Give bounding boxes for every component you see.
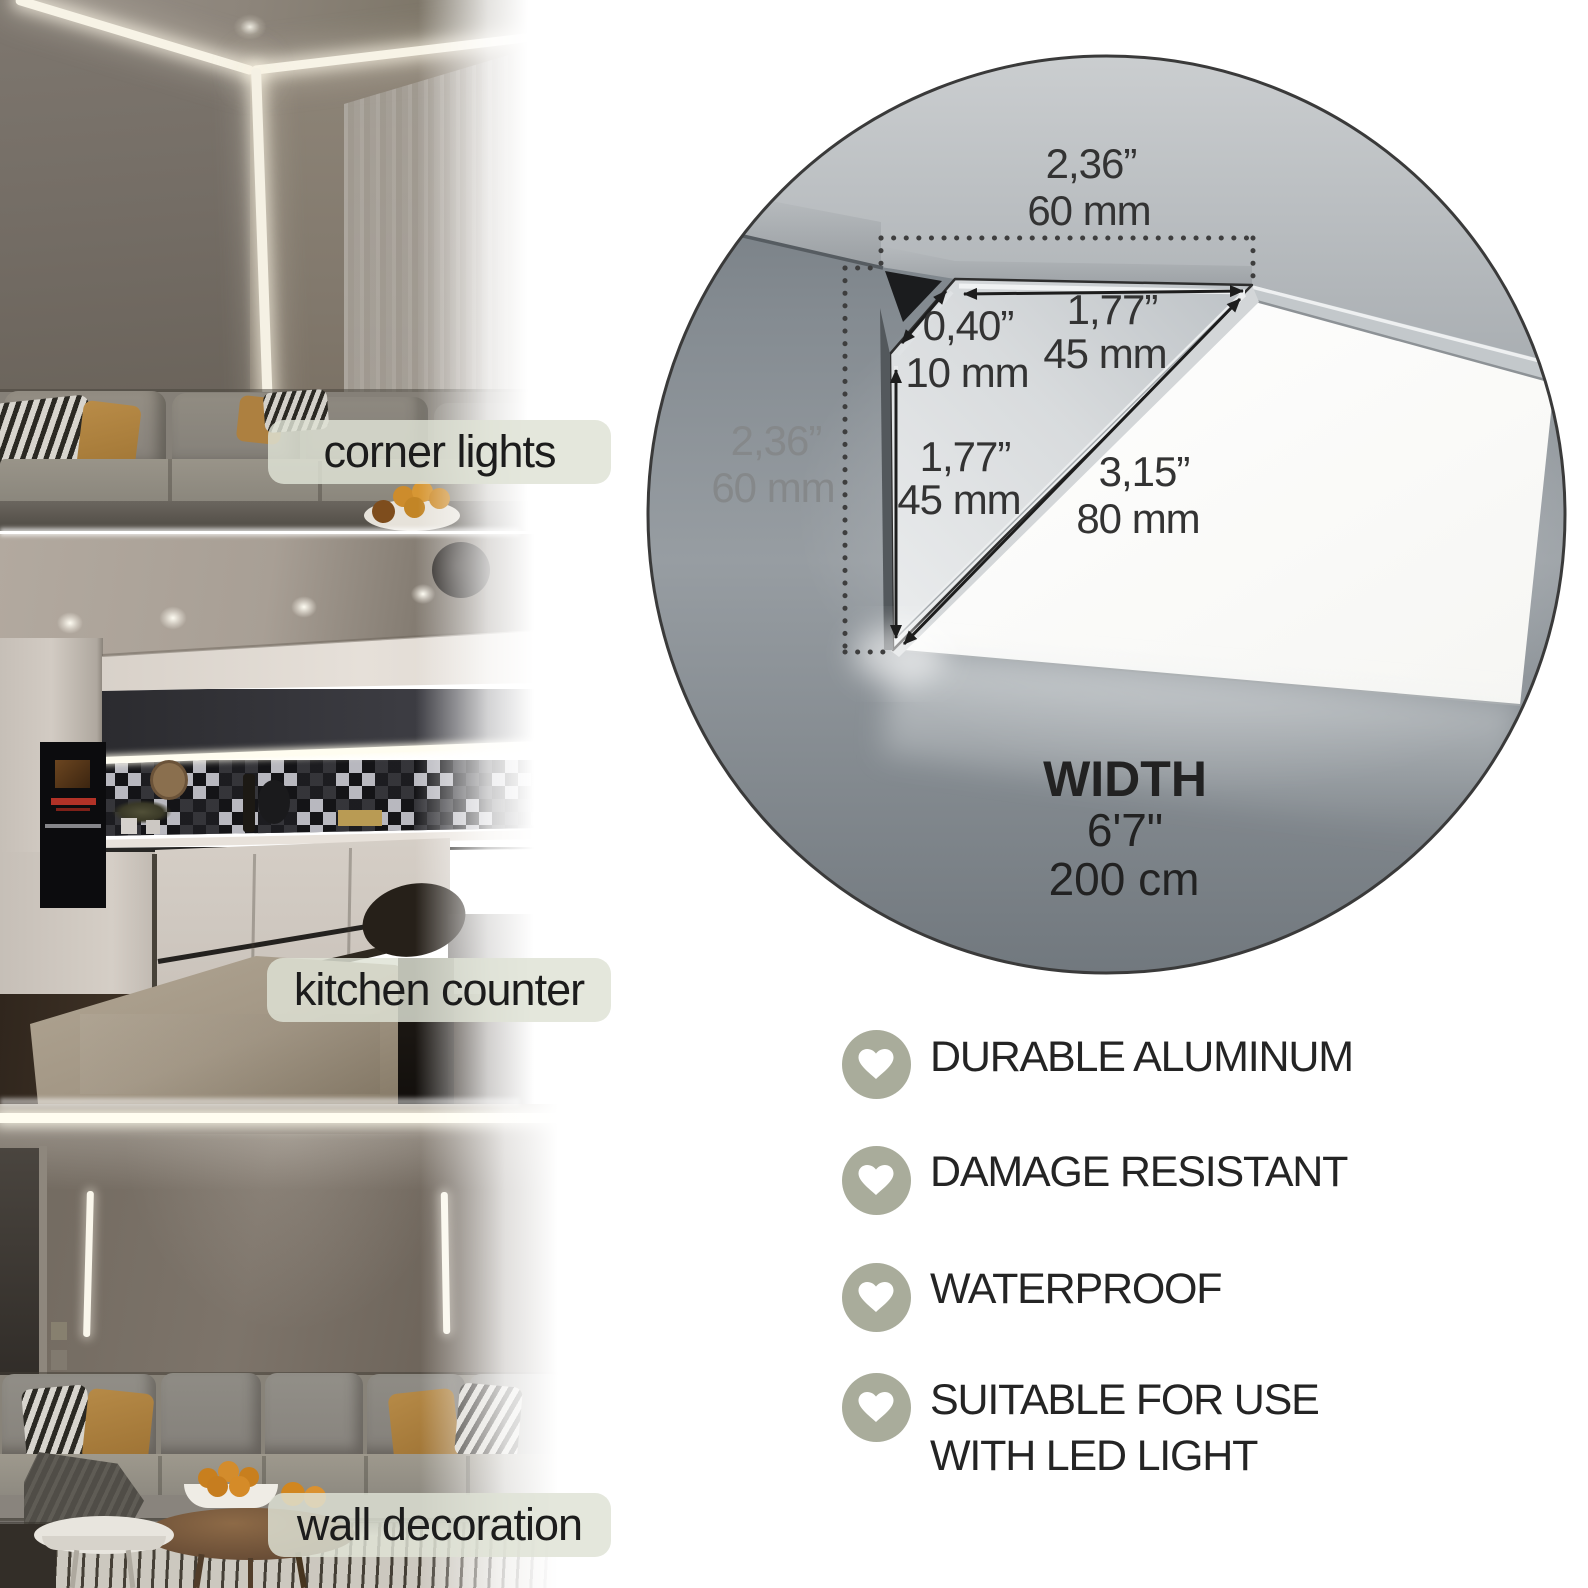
svg-text:45 mm: 45 mm (1043, 330, 1166, 377)
svg-text:WIDTH: WIDTH (1043, 751, 1207, 807)
svg-text:2,36”: 2,36” (1046, 140, 1137, 187)
svg-text:3,15”: 3,15” (1099, 448, 1190, 495)
svg-text:6'7": 6'7" (1087, 804, 1163, 856)
svg-text:45 mm: 45 mm (897, 476, 1020, 523)
svg-text:2,36”: 2,36” (731, 417, 822, 464)
svg-text:0,40”: 0,40” (923, 302, 1014, 349)
svg-text:1,77”: 1,77” (1067, 286, 1158, 333)
svg-text:80 mm: 80 mm (1076, 495, 1199, 542)
svg-text:200 cm: 200 cm (1049, 853, 1200, 905)
svg-text:1,77”: 1,77” (920, 433, 1011, 480)
svg-text:60 mm: 60 mm (711, 464, 834, 511)
svg-text:60 mm: 60 mm (1027, 187, 1150, 234)
svg-text:10 mm: 10 mm (905, 349, 1028, 396)
